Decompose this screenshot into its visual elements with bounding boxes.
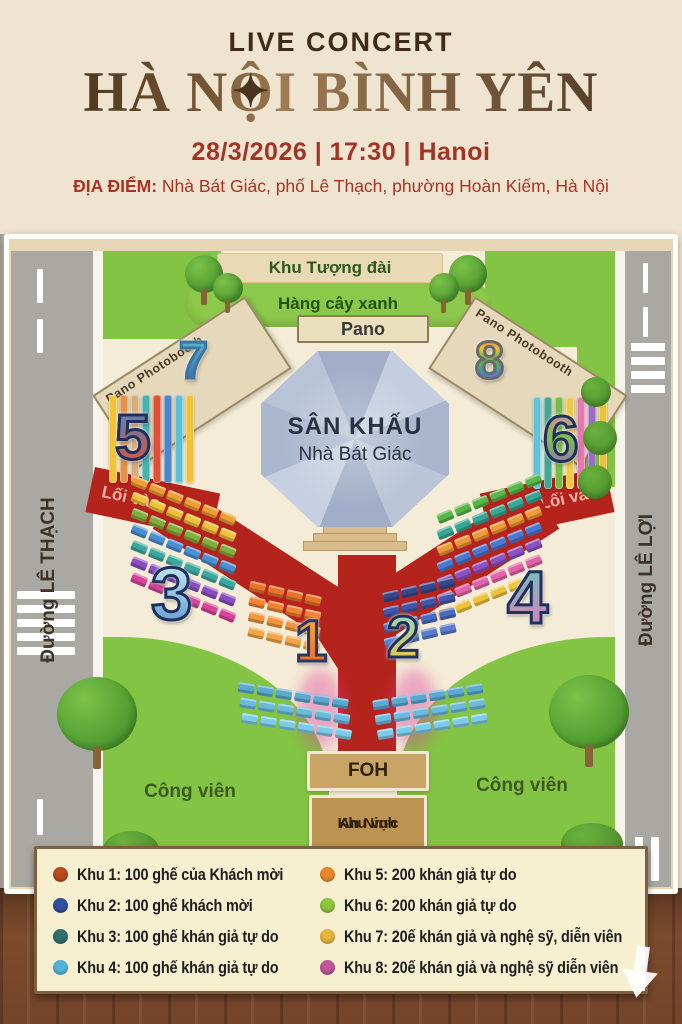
- seat-block: [201, 552, 220, 567]
- seat-block: [313, 694, 330, 706]
- seat-block: [372, 698, 389, 710]
- compass-star-icon: ✦: [232, 67, 270, 116]
- seat-block: [439, 622, 457, 635]
- legend-item-label: Khu 6: 200 khán giả tự do: [344, 896, 516, 916]
- seat-block: [247, 626, 265, 639]
- concert-poster: LIVE CONCERT HÀ NỘ✦I BÌNH YÊN 28/3/2026 …: [0, 0, 682, 1024]
- legend-item: Khu 3: 100 ghế khán giả tự do: [53, 922, 320, 952]
- seat-block: [391, 695, 408, 707]
- seat-block: [130, 491, 149, 506]
- legend-item-label: Khu 2: 100 ghế khách mời: [77, 896, 253, 916]
- seat-block: [165, 522, 184, 537]
- seat-block: [438, 577, 456, 590]
- seat-block: [524, 522, 543, 537]
- seat-block: [201, 568, 220, 583]
- seat-block: [438, 592, 456, 605]
- seat-block: [241, 713, 258, 725]
- seat-block: [130, 524, 149, 539]
- zebra-stripe: [631, 357, 665, 365]
- zebra-stripe: [631, 371, 665, 379]
- seat-block: [489, 520, 508, 535]
- seat-block: [239, 697, 256, 709]
- seat-block: [304, 593, 322, 606]
- sidewalk-right: [615, 251, 625, 887]
- security-line2: An Ninh: [339, 815, 397, 834]
- seat-block: [335, 728, 352, 740]
- seat-bar: [186, 395, 194, 483]
- event-venue: ĐỊA ĐIỂM: Nhà Bát Giác, phố Lê Thạch, ph…: [0, 176, 682, 197]
- seat-block: [414, 722, 431, 734]
- legend-item: Khu 4: 100 ghế khán giả tự do: [53, 953, 320, 983]
- legend-color-dot: [53, 960, 68, 975]
- seat-block: [332, 697, 349, 709]
- park-label-right: Công viên: [437, 775, 607, 797]
- zebra-stripe: [631, 385, 665, 393]
- seat-block: [396, 725, 413, 737]
- seat-block: [436, 525, 455, 540]
- seat-block: [183, 513, 202, 528]
- legend-item: Khu 2: 100 ghế khách mời: [53, 891, 320, 921]
- legend-item-label: Khu 7: 20ế khán giả và nghệ sỹ, diễn viê…: [344, 927, 622, 947]
- seat-block: [165, 506, 184, 521]
- seat-block: [472, 575, 491, 590]
- seat-block: [256, 685, 273, 697]
- seat-block: [314, 709, 331, 721]
- seat-block: [436, 541, 455, 556]
- seat-block: [472, 559, 491, 574]
- seat-block: [410, 692, 427, 704]
- seat-block: [489, 568, 508, 583]
- seat-block: [297, 722, 314, 734]
- seat-block: [258, 700, 275, 712]
- legend-item: Khu 6: 200 khán giả tự do: [320, 891, 671, 921]
- seat-bar: [164, 395, 172, 483]
- bush-icon: [578, 465, 612, 499]
- seat-block: [420, 627, 438, 640]
- stage-octagon: SÂN KHẤU Nhà Bát Giác: [261, 351, 449, 527]
- seat-block: [433, 719, 450, 731]
- seat-block: [452, 716, 469, 728]
- seat-block: [266, 615, 284, 628]
- legend-color-dot: [320, 960, 335, 975]
- monument-area-label: Khu Tượng đài: [217, 253, 443, 283]
- legend-item: Khu 7: 20ế khán giả và nghệ sỹ, diễn viê…: [320, 922, 671, 952]
- legend-item-label: Khu 5: 200 khán giả tự do: [344, 865, 516, 885]
- seat-block: [489, 536, 508, 551]
- lane-dash: [37, 799, 43, 835]
- seat-block: [454, 550, 473, 565]
- lane-dash: [37, 269, 43, 303]
- seat-block: [420, 611, 438, 624]
- stage-steps: [303, 541, 407, 551]
- seat-block: [382, 589, 400, 602]
- stage-label-line2: Nhà Bát Giác: [299, 444, 412, 466]
- seat-block: [472, 592, 491, 607]
- legend-item-label: Khu 4: 100 ghế khán giả tự do: [77, 958, 278, 978]
- seat-block: [489, 584, 508, 599]
- seat-block: [471, 511, 490, 526]
- seat-block: [278, 719, 295, 731]
- lane-dash: [643, 263, 648, 293]
- seat-block: [524, 506, 543, 521]
- seat-block: [218, 592, 237, 607]
- street-label-le-loi: Đường LÊ LỢI: [636, 470, 658, 690]
- seat-block: [466, 683, 483, 695]
- header: LIVE CONCERT HÀ NỘ✦I BÌNH YÊN 28/3/2026 …: [0, 0, 682, 234]
- page-title: HÀ NỘ✦I BÌNH YÊN: [0, 62, 682, 125]
- seat-block: [130, 572, 149, 587]
- seat-block: [238, 682, 255, 694]
- zone-3-number: 3: [151, 557, 192, 631]
- seat-block: [183, 529, 202, 544]
- seat-block: [130, 540, 149, 555]
- zone-2-number: 2: [387, 609, 419, 667]
- seat-block: [148, 515, 167, 530]
- seat-block: [200, 585, 219, 600]
- seat-block: [130, 508, 149, 523]
- seat-block: [429, 689, 446, 701]
- seat-block: [412, 707, 429, 719]
- seat-block: [218, 543, 237, 558]
- seat-block: [201, 536, 220, 551]
- seat-block: [165, 538, 184, 553]
- seat-block: [267, 600, 285, 613]
- seat-block: [393, 710, 410, 722]
- seat-block: [401, 585, 419, 598]
- legend-color-dot: [53, 898, 68, 913]
- seat-block: [333, 712, 350, 724]
- seat-block: [266, 631, 284, 644]
- seat-block: [507, 513, 526, 528]
- legend-color-dot: [320, 867, 335, 882]
- legend-item: Khu 8: 20ế khán giả và nghệ sỹ diễn viên: [320, 953, 671, 983]
- seat-block: [436, 557, 455, 572]
- zone-8-number: 8: [475, 335, 504, 387]
- seat-block: [454, 518, 473, 533]
- seat-block: [248, 611, 266, 624]
- legend-item-label: Khu 1: 100 ghế của Khách mời: [77, 865, 283, 885]
- seat-block: [294, 691, 311, 703]
- seat-block: [471, 713, 488, 725]
- bush-icon: [581, 377, 611, 407]
- event-datetime: 28/3/2026 | 17:30 | Hanoi: [0, 138, 682, 167]
- legend-color-dot: [53, 929, 68, 944]
- seat-block: [419, 581, 437, 594]
- seat-block: [296, 706, 313, 718]
- legend-color-dot: [320, 898, 335, 913]
- zone-4-number: 4: [507, 561, 548, 635]
- title-part-pre: HÀ N: [84, 61, 229, 124]
- zebra-stripe: [631, 343, 665, 351]
- zone-6-number: 6: [543, 407, 579, 471]
- seat-bar: [175, 395, 183, 483]
- legend-item: Khu 5: 200 khán giả tự do: [320, 860, 671, 890]
- zone-7-number: 7: [179, 335, 208, 387]
- seat-block: [218, 559, 237, 574]
- seat-block: [200, 601, 219, 616]
- seat-block: [277, 703, 294, 715]
- seat-block: [447, 686, 464, 698]
- seat-block: [275, 688, 292, 700]
- park-label-left: Công viên: [105, 781, 275, 803]
- bush-icon: [583, 421, 617, 455]
- seat-block: [377, 728, 394, 740]
- seat-block: [218, 527, 237, 542]
- lane-dash: [37, 319, 43, 353]
- seat-block: [267, 585, 285, 598]
- title-part-o: Ộ✦: [228, 61, 273, 124]
- seat-block: [420, 596, 438, 609]
- legend-color-dot: [53, 867, 68, 882]
- seat-block: [524, 538, 543, 553]
- seat-block: [507, 497, 526, 512]
- venue-label: ĐỊA ĐIỂM:: [73, 176, 157, 196]
- seat-block: [454, 534, 473, 549]
- seat-block: [471, 543, 490, 558]
- seat-block: [450, 701, 467, 713]
- seat-block: [249, 581, 267, 594]
- seat-block: [248, 596, 266, 609]
- seat-block: [148, 499, 167, 514]
- seat-block: [489, 552, 508, 567]
- legend-item: Khu 1: 100 ghế của Khách mời: [53, 860, 320, 890]
- event-type-label: LIVE CONCERT: [0, 27, 682, 58]
- seat-block: [260, 716, 277, 728]
- seat-block: [489, 504, 508, 519]
- venue-text: Nhà Bát Giác, phố Lê Thạch, phường Hoàn …: [157, 176, 609, 196]
- seat-block: [375, 713, 392, 725]
- seat-block: [130, 556, 149, 571]
- seat-bar: [153, 395, 161, 483]
- legend-item-label: Khu 8: 20ế khán giả và nghệ sỹ diễn viên: [344, 958, 618, 978]
- seat-block: [524, 489, 543, 504]
- seat-block: [218, 575, 237, 590]
- street-label-le-thach: Đường LÊ THẠCH: [38, 470, 60, 690]
- seat-block: [148, 531, 167, 546]
- seat-block: [471, 527, 490, 542]
- seat-block: [201, 520, 220, 535]
- seat-block: [468, 698, 485, 710]
- security-area-box: Khu vực An Ninh: [309, 795, 427, 853]
- seat-block: [431, 704, 448, 716]
- seat-block: [316, 725, 333, 737]
- seat-block: [454, 566, 473, 581]
- title-part-post: I BÌNH YÊN: [274, 61, 599, 124]
- pano-sign: Pano: [297, 315, 429, 343]
- legend: Khu 1: 100 ghế của Khách mờiKhu 2: 100 g…: [34, 846, 648, 994]
- seat-block: [439, 607, 457, 620]
- stage-label-line1: SÂN KHẤU: [288, 413, 423, 441]
- zone-1-number: 1: [295, 613, 327, 671]
- venue-map: Đường LÊ THẠCH Đường LÊ LỢI Khu Tượng đà…: [4, 234, 678, 894]
- seat-block: [507, 529, 526, 544]
- lane-dash: [643, 307, 648, 337]
- seat-block: [286, 589, 304, 602]
- foh-box: FOH: [307, 751, 429, 791]
- legend-color-dot: [320, 929, 335, 944]
- zone-5-number: 5: [115, 405, 151, 469]
- legend-item-label: Khu 3: 100 ghế khán giả tự do: [77, 927, 278, 947]
